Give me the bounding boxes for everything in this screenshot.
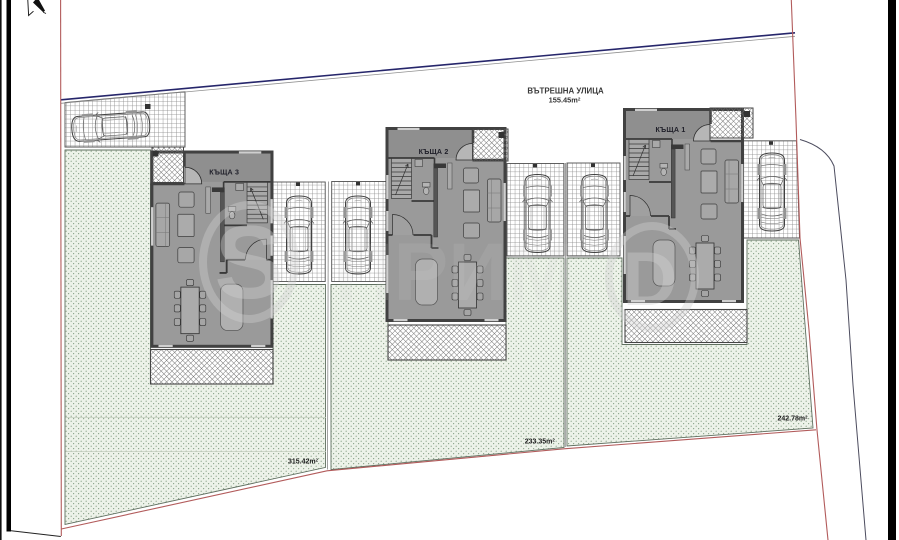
svg-text:КЪЩА 3: КЪЩА 3 [209,169,239,177]
svg-text:242.78m2: 242.78m2 [777,415,808,423]
svg-text:233.35m2: 233.35m2 [525,437,556,445]
svg-text:S: S [214,205,283,321]
svg-text:D: D [623,237,678,322]
svg-text:ПРИМ: ПРИМ [335,227,576,318]
svg-text:КЪЩА 2: КЪЩА 2 [419,148,449,156]
svg-text:315.42m2: 315.42m2 [288,458,319,466]
svg-text:155.45m2: 155.45m2 [549,96,581,105]
svg-text:КЪЩА 1: КЪЩА 1 [656,126,686,134]
svg-text:ВЪТРЕШНА УЛИЦА: ВЪТРЕШНА УЛИЦА [527,87,604,96]
